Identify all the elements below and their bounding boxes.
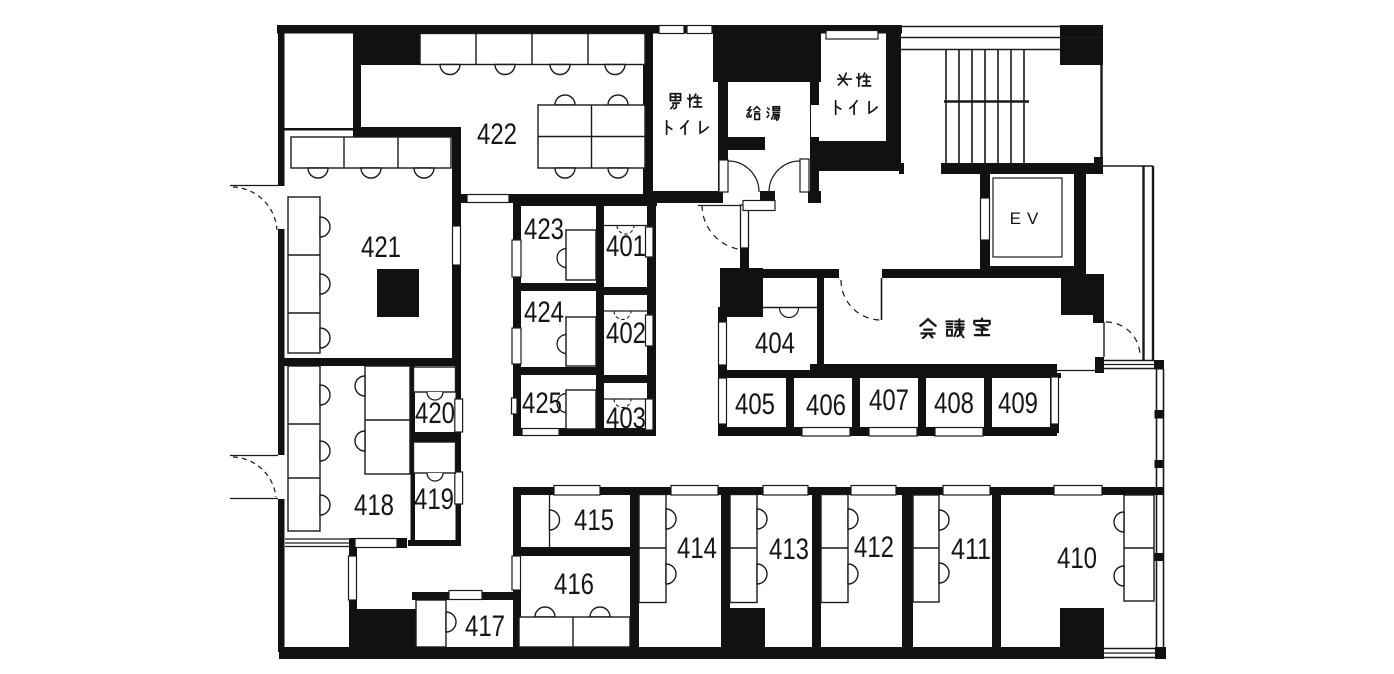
svg-text:406: 406 [806, 389, 846, 422]
svg-text:414: 414 [677, 532, 717, 565]
svg-text:413: 413 [769, 533, 809, 566]
svg-text:404: 404 [755, 327, 795, 360]
svg-text:402: 402 [606, 317, 646, 350]
svg-text:425: 425 [522, 387, 562, 420]
svg-text:410: 410 [1057, 542, 1097, 575]
svg-text:421: 421 [361, 231, 401, 264]
svg-text:424: 424 [524, 296, 564, 329]
svg-text:409: 409 [998, 387, 1038, 420]
svg-text:416: 416 [554, 568, 594, 601]
svg-text:EV: EV [1010, 209, 1045, 228]
svg-text:420: 420 [415, 397, 455, 430]
svg-text:403: 403 [606, 402, 646, 435]
svg-text:401: 401 [606, 230, 646, 263]
svg-text:417: 417 [465, 610, 505, 643]
svg-text:408: 408 [934, 387, 974, 420]
svg-text:419: 419 [414, 483, 454, 516]
svg-text:415: 415 [574, 504, 614, 537]
svg-text:411: 411 [951, 533, 991, 566]
svg-text:407: 407 [869, 384, 909, 417]
svg-text:422: 422 [477, 118, 517, 151]
svg-text:418: 418 [354, 489, 394, 522]
svg-text:423: 423 [524, 213, 564, 246]
svg-text:405: 405 [735, 388, 775, 421]
svg-text:412: 412 [854, 531, 894, 564]
